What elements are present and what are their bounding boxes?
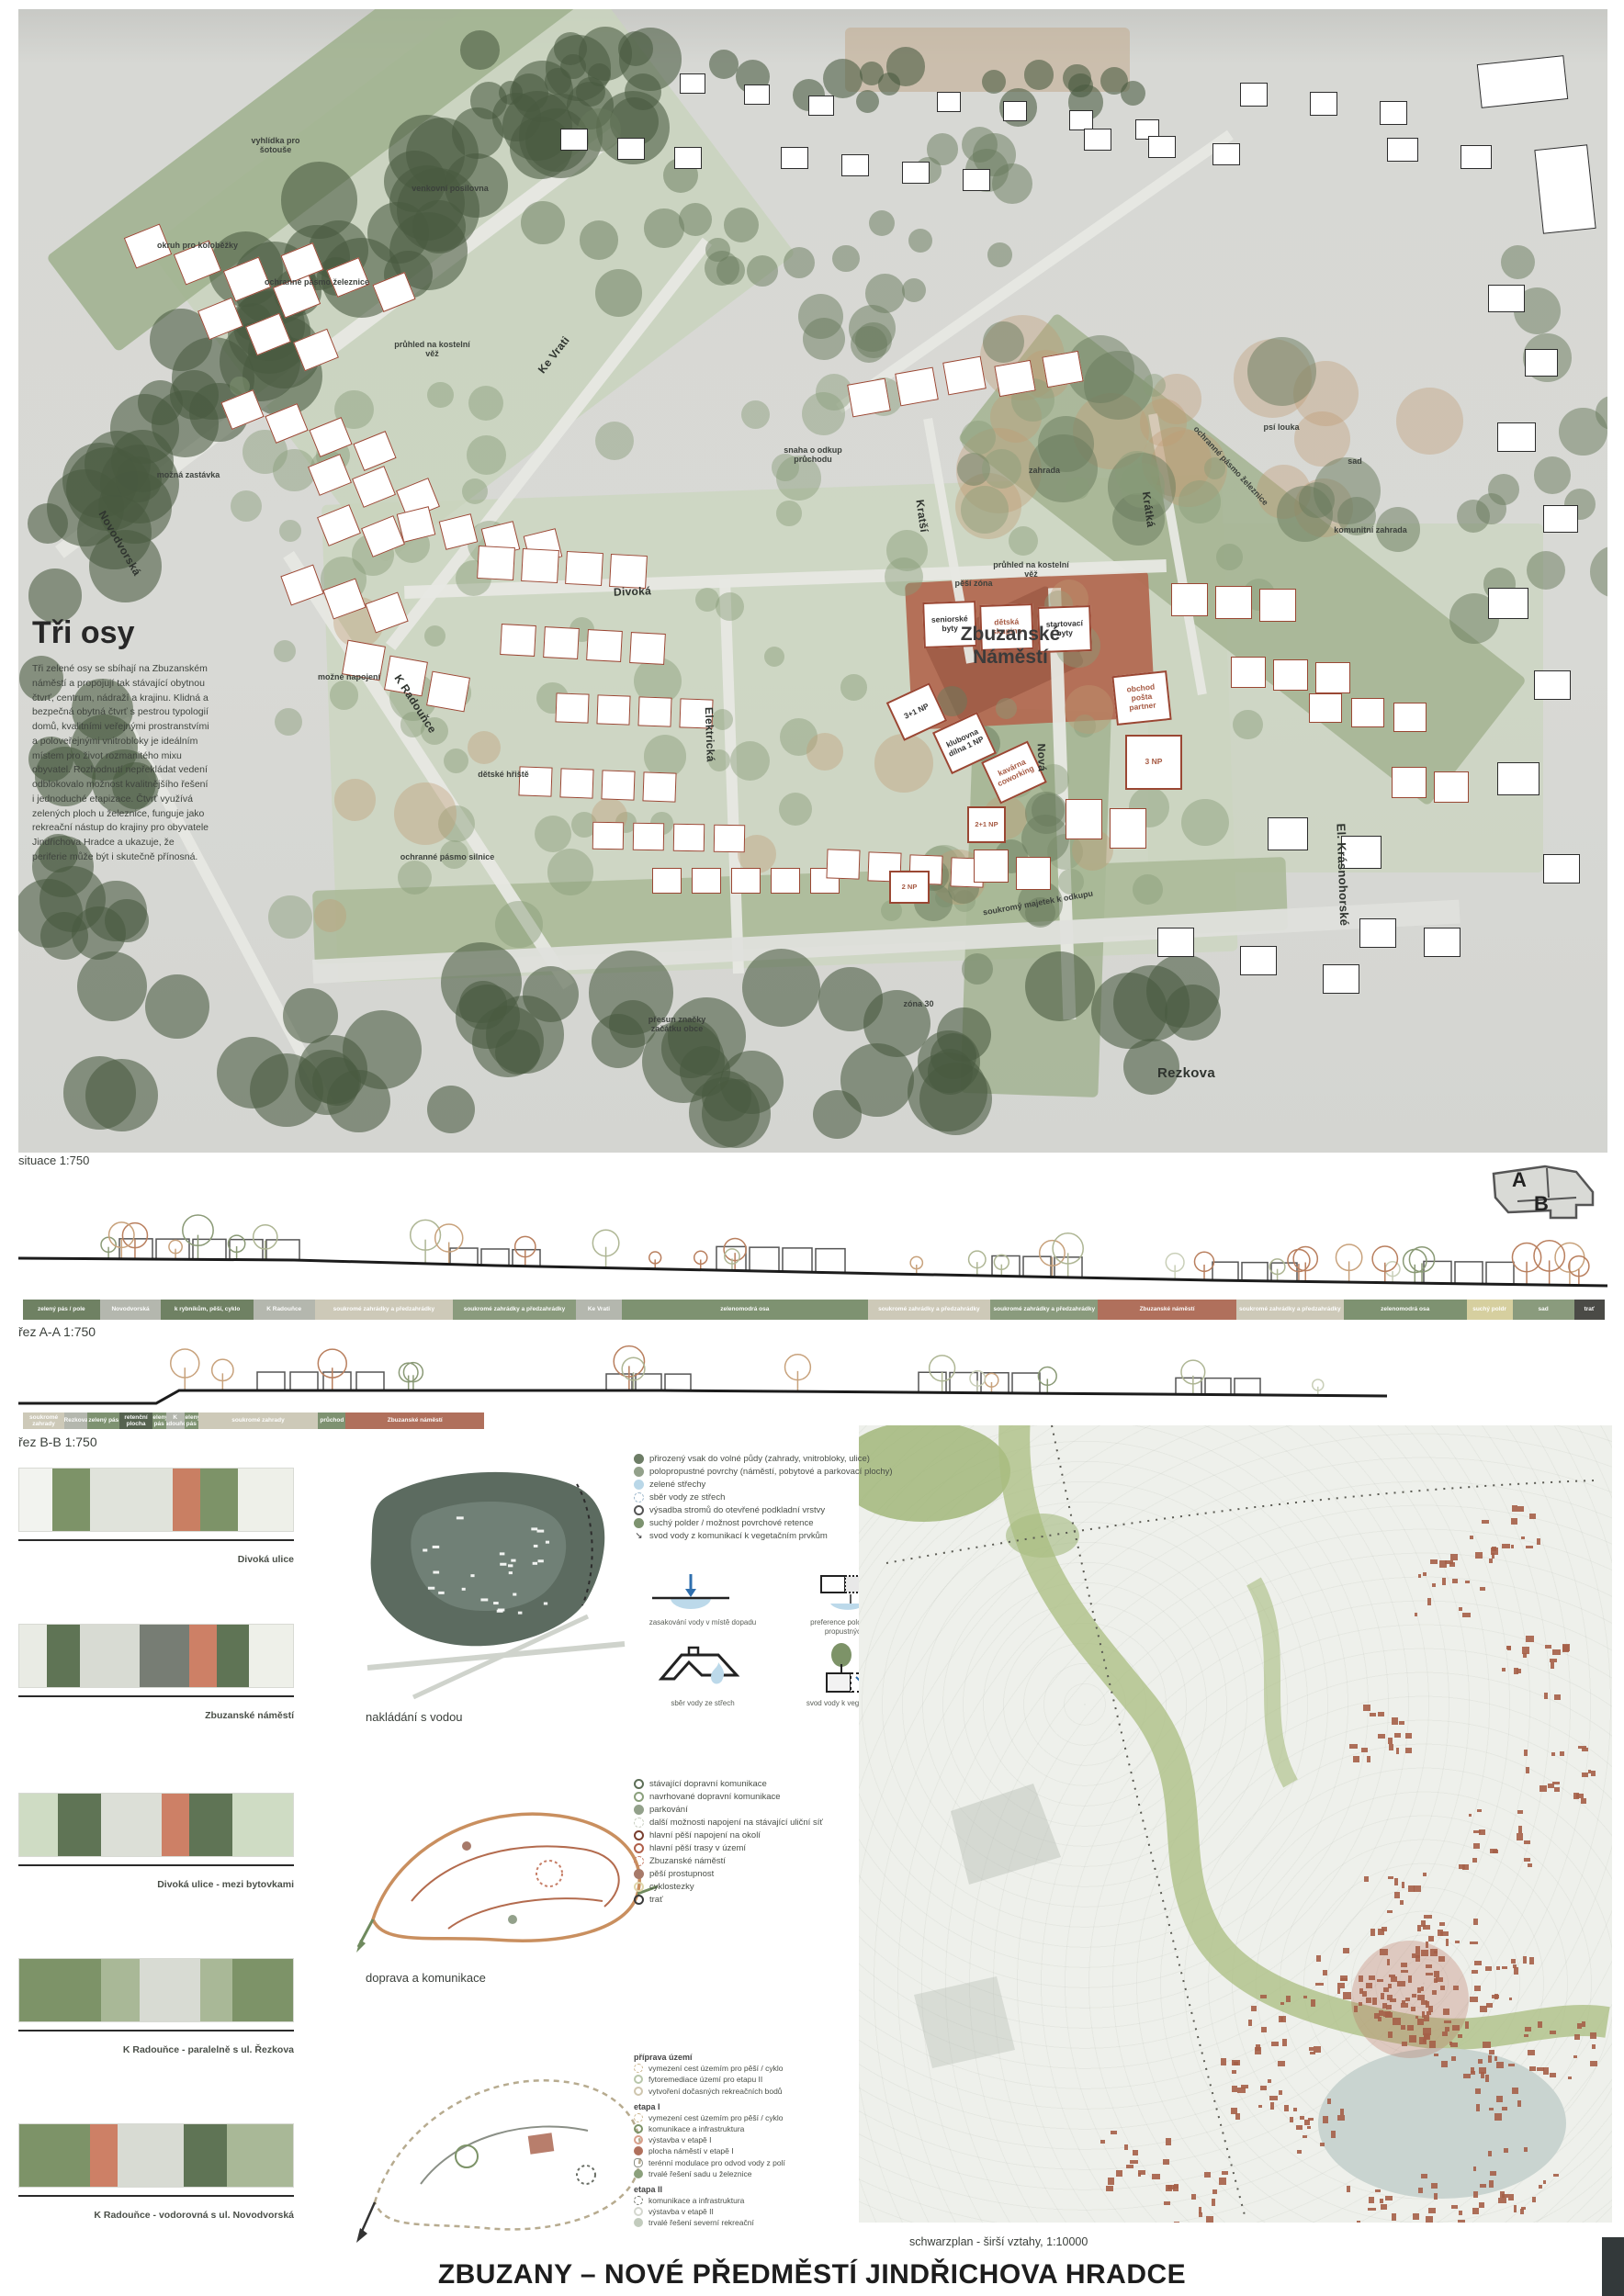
- schwarzplan-building: [1496, 2096, 1503, 2102]
- schwarzplan-building: [1434, 1951, 1438, 1953]
- schwarzplan-building: [1268, 2079, 1271, 2084]
- legend-item: trvalé řešení severní rekreační: [634, 2218, 909, 2227]
- section-building: [323, 1372, 351, 1390]
- schwarzplan-building: [1255, 2047, 1261, 2054]
- section-building: [266, 1240, 299, 1260]
- street-section-plan: [18, 2123, 294, 2188]
- proposed-building: [197, 298, 243, 341]
- section-band-segment: soukromé zahrádky a předzahrádky: [1236, 1300, 1344, 1320]
- section-band-segment: retenční plocha: [119, 1412, 152, 1429]
- schwarzplan-building: [1408, 1885, 1415, 1892]
- schwarzplan-building: [1106, 2186, 1113, 2191]
- roof-icon: [634, 1642, 744, 1695]
- schwarzplan-building: [1514, 1967, 1519, 1974]
- schwarzplan-building: [1453, 1986, 1459, 1990]
- existing-building: [1497, 762, 1539, 795]
- schwarzplan-building: [1349, 1744, 1358, 1749]
- section-band-segment: soukromé zahrádky a předzahrádky: [315, 1300, 453, 1320]
- schwarzplan-building: [1401, 2003, 1408, 2008]
- schwarzplan-building: [1440, 1931, 1449, 1936]
- schwarzplan-building: [1552, 1649, 1561, 1656]
- proposed-building: [555, 692, 589, 723]
- schwarzplan-building: [1443, 2009, 1449, 2015]
- schwarzplan-building: [1409, 2035, 1415, 2042]
- schwarzplan-building: [1426, 1973, 1433, 1975]
- legend-label: cyklostezky: [649, 1882, 694, 1892]
- legend-item: ↘svod vody z komunikací k vegetačním prv…: [634, 1531, 928, 1541]
- schwarzplan-building: [1297, 2150, 1302, 2154]
- legend-item: komunikace a infrastruktura: [634, 2196, 909, 2205]
- schwarzplan-building: [1430, 1559, 1438, 1563]
- schwarzplan-building: [1311, 1999, 1314, 2007]
- schwarzplan-building: [1138, 2170, 1145, 2174]
- schwarzplan-building: [1514, 2205, 1517, 2212]
- schwarzplan-building: [1526, 1767, 1529, 1773]
- street-rezkova: Rezkova: [1157, 1065, 1215, 1081]
- schwarzplan-building: [1340, 2109, 1344, 2114]
- schwarzplan-building: [1529, 1514, 1536, 1519]
- schwarzplan-building: [1401, 1963, 1407, 1968]
- proposed-building: [1434, 771, 1469, 803]
- schwarzplan-building: [1518, 1826, 1522, 1833]
- legend-item: výstavba v etapě II: [634, 2207, 909, 2216]
- schwarzplan-building: [1474, 1961, 1483, 1965]
- proposed-building: [1066, 799, 1102, 839]
- schwarzplan-building: [1417, 2019, 1424, 2025]
- schwarzplan-building: [1366, 1998, 1372, 2003]
- schwarzplan-building: [1470, 1997, 1478, 2002]
- schwarzplan-building: [1477, 1809, 1483, 1812]
- schwarzplan-building: [1337, 1988, 1340, 1994]
- legend-label: výstavba v etapě II: [648, 2207, 714, 2216]
- schwarzplan-building: [1524, 1750, 1528, 1756]
- existing-building: [1380, 101, 1407, 125]
- schwarzplan-map: [859, 1425, 1612, 2223]
- schwarzplan-building: [1204, 2172, 1210, 2177]
- schwarzplan-caption: schwarzplan - širší vztahy, 1:10000: [909, 2235, 1088, 2248]
- legend-item: fytoremediace území pro etapu II: [634, 2075, 909, 2084]
- existing-building: [1488, 285, 1525, 312]
- proposed-building: [586, 629, 623, 662]
- ring-marker-icon: [634, 2075, 643, 2084]
- section-band-segment: soukromé zahrádky a předzahrádky: [868, 1300, 991, 1320]
- existing-building: [781, 147, 808, 169]
- existing-building: [1359, 918, 1396, 948]
- schwarzplan-building: [1401, 1970, 1409, 1973]
- schwarzplan-building: [1130, 2160, 1138, 2164]
- schwarzplan-building: [1337, 2115, 1345, 2122]
- schwarzplan-building: [1362, 1991, 1366, 1997]
- existing-building: [674, 147, 702, 169]
- street-section-thumb: Divoká ulice - mezi bytovkami: [18, 1793, 294, 1890]
- label-zona-30: zóna 30: [891, 999, 946, 1008]
- schwarzplan-building: [1323, 1970, 1327, 1976]
- water-diagram-label: zasakování vody v místě dopadu: [634, 1618, 772, 1627]
- schwarzplan-building: [1221, 2058, 1226, 2065]
- existing-building: [1477, 55, 1568, 108]
- dashed-marker-icon: [634, 2064, 643, 2073]
- schwarzplan-building: [1576, 1794, 1584, 1798]
- schwarzplan-building: [1494, 2056, 1497, 2061]
- schwarzplan-building: [1343, 1992, 1351, 1999]
- schwarzplan-building: [1284, 2105, 1289, 2111]
- legend-item: vymezení cest územím pro pěší / cyklo: [634, 2064, 909, 2073]
- schwarzplan-building: [1590, 2061, 1597, 2066]
- existing-building: [1488, 588, 1528, 619]
- proposed-building: [1231, 657, 1266, 688]
- schwarzplan-building: [1166, 2138, 1171, 2145]
- schwarzplan-building: [1304, 2120, 1309, 2125]
- schwarzplan-building: [1459, 2211, 1462, 2215]
- section-building: [257, 1372, 285, 1390]
- schwarzplan-building: [1462, 1613, 1471, 1617]
- proposed-building: [601, 770, 635, 800]
- legend-item: navrhované dopravní komunikace: [634, 1792, 928, 1802]
- schwarzplan-building: [1251, 2006, 1257, 2010]
- ring-marker-icon: [634, 1843, 644, 1853]
- proposed-building: [559, 768, 593, 798]
- schwarzplan-building: [1387, 1995, 1393, 2000]
- schwarzplan-building: [1394, 1733, 1401, 1738]
- schwarzplan-building: [1545, 1645, 1552, 1649]
- schwarzplan-building: [1401, 2025, 1405, 2030]
- existing-building: [744, 84, 770, 105]
- legend-label: zelené střechy: [649, 1480, 705, 1490]
- existing-building: [1240, 946, 1277, 975]
- existing-building: [902, 162, 930, 184]
- legend-item: trať: [634, 1895, 928, 1905]
- proposed-building: [1393, 703, 1427, 732]
- schwarzplan-building: [1432, 1583, 1436, 1587]
- schwarzplan-building: [1357, 2221, 1361, 2223]
- schwarzplan-building: [1133, 2150, 1138, 2155]
- street-band: [90, 2124, 118, 2187]
- existing-building: [1240, 83, 1268, 107]
- label-mozna-zastavka: možná zastávka: [152, 470, 225, 479]
- schwarzplan-building: [1385, 2196, 1393, 2200]
- schwarzplan-building: [1412, 1953, 1420, 1959]
- schwarzplan-building: [1517, 1810, 1523, 1814]
- proposed-building: [652, 868, 682, 894]
- schwarzplan-building: [1469, 1814, 1472, 1817]
- schwarzplan-building: [1592, 2044, 1596, 2050]
- legend-item: cyklostezky: [634, 1882, 928, 1892]
- existing-building: [1497, 422, 1536, 452]
- section-b-band: soukromé zahradyRezkovazelený pásretenčn…: [23, 1412, 484, 1429]
- schwarzplan-building: [1478, 2059, 1483, 2065]
- schwarzplan-building: [1496, 2062, 1504, 2067]
- schwarzplan-building: [1479, 1829, 1485, 1836]
- section-building: [816, 1249, 845, 1273]
- schwarzplan-building: [1475, 1552, 1483, 1559]
- schwarzplan-building: [1485, 2075, 1489, 2082]
- legend-item: vytvoření dočasných rekreačních bodů: [634, 2087, 909, 2096]
- filled-marker-icon: [634, 1805, 644, 1815]
- street-band: [162, 1794, 189, 1856]
- existing-building: [617, 138, 645, 160]
- schwarzplan-building: [1502, 2194, 1508, 2198]
- street-divoka: Divoká: [614, 585, 652, 599]
- schwarzplan-building: [1124, 2144, 1128, 2150]
- schwarzplan-building: [1235, 2113, 1240, 2120]
- filled-marker-icon: [634, 2146, 643, 2155]
- schwarzplan-building: [1492, 1553, 1494, 1558]
- schwarzplan-building: [1528, 1863, 1532, 1867]
- legend-label: výsadba stromů do otevřené podkladní vrs…: [649, 1505, 825, 1515]
- legend-label: hlavní pěší napojení na okolí: [649, 1830, 761, 1840]
- legend-label: stávající dopravní komunikace: [649, 1779, 767, 1789]
- existing-building: [1534, 144, 1596, 234]
- section-band-segment: soukromé zahrady: [198, 1412, 319, 1429]
- schwarzplan-building: [1389, 1744, 1393, 1750]
- schwarzplan-building: [1286, 1996, 1291, 2002]
- schwarzplan-building: [1450, 1554, 1458, 1560]
- ground-line: [18, 1864, 294, 1866]
- proposed-building: [1215, 586, 1252, 619]
- street-section-thumb: K Radouňce - vodorovná s ul. Novodvorská: [18, 2123, 294, 2221]
- phasing-group-header: etapa II: [634, 2185, 909, 2194]
- proposed-building: [500, 624, 536, 657]
- schwarzplan-building: [1310, 2052, 1315, 2054]
- schwarzplan-building: [1392, 1717, 1399, 1725]
- section-building: [1205, 1379, 1231, 1395]
- water-legend: přirozený vsak do volné půdy (zahrady, v…: [634, 1451, 928, 1544]
- schwarzplan-building: [1359, 2002, 1362, 2006]
- legend-item: plocha náměstí v etapě I: [634, 2146, 909, 2155]
- legend-item: polopropustné povrchy (náměstí, pobytové…: [634, 1467, 928, 1477]
- schwarzplan-building: [1424, 2035, 1429, 2039]
- ring-marker-icon: [634, 2124, 643, 2133]
- schwarzplan-building: [1489, 2180, 1494, 2188]
- schwarzplan-building: [1481, 2072, 1484, 2078]
- schwarzplan-building: [1394, 1878, 1398, 1885]
- schwarzplan-building: [1361, 1748, 1368, 1752]
- schwarzplan-building: [1502, 1668, 1506, 1671]
- schwarzplan-building: [1438, 1956, 1446, 1963]
- section-building: [1176, 1378, 1201, 1394]
- section-building: [1455, 1262, 1483, 1284]
- section-building: [1235, 1379, 1260, 1395]
- corner-tab: [1602, 2237, 1624, 2296]
- section-building: [1486, 1262, 1514, 1284]
- street-band: [19, 1794, 58, 1856]
- ring-marker-icon: [634, 1830, 644, 1840]
- legend-label: parkování: [649, 1805, 688, 1815]
- schwarzplan-building: [1552, 1782, 1561, 1785]
- proposed-building: [352, 466, 396, 508]
- schwarzplan-building: [1434, 2054, 1438, 2056]
- proposed-building: [1392, 767, 1427, 798]
- schwarzplan-building: [1408, 1975, 1412, 1983]
- schwarzplan-building: [1370, 1929, 1375, 1935]
- legend-item: suchý polder / možnost povrchové retence: [634, 1518, 928, 1528]
- schwarzplan-building: [1405, 1733, 1412, 1738]
- schwarzplan-building: [1539, 1785, 1548, 1792]
- schwarzplan-building: [1353, 1756, 1359, 1762]
- schwarzplan-building: [1412, 1994, 1417, 1998]
- schwarzplan-building: [1465, 2021, 1470, 2029]
- schwarzplan-building: [1237, 2088, 1246, 2093]
- street-band: [249, 1625, 293, 1687]
- section-building: [1012, 1373, 1040, 1393]
- section-band-segment: soukromé zahrady: [23, 1412, 64, 1429]
- schwarzplan-building: [1303, 1996, 1307, 1999]
- street-section-thumb: Zbuzanské náměstí: [18, 1624, 294, 1721]
- key-map-b: B: [1534, 1192, 1549, 1216]
- schwarzplan-building: [1472, 1858, 1477, 1862]
- schwarzplan-building: [1407, 2025, 1414, 2031]
- building-layer: [18, 9, 1607, 1153]
- legend-label: vymezení cest územím pro pěší / cyklo: [648, 2113, 783, 2122]
- schwarzplan-building: [1568, 2077, 1572, 2079]
- schwarzplan-building: [1511, 1959, 1515, 1964]
- schwarzplan-building: [1392, 2213, 1396, 2221]
- schwarzplan-building: [1279, 2090, 1282, 2095]
- proposed-building: [308, 454, 352, 496]
- section-band-segment: zelený pás: [152, 1412, 166, 1429]
- schwarzplan-building: [1402, 1882, 1404, 1888]
- schwarzplan-building: [1471, 2071, 1475, 2075]
- section-a-band: zelený pás / poleNovodvorskák rybníkům, …: [23, 1300, 1605, 1320]
- filled-marker-icon: [634, 1480, 644, 1490]
- schwarzplan-building: [1526, 1636, 1534, 1642]
- section-building: [1023, 1256, 1051, 1277]
- legend-label: komunikace a infrastruktura: [648, 2124, 744, 2133]
- schwarzplan-building: [1234, 2062, 1239, 2065]
- proposed-building: [1259, 589, 1296, 622]
- label-pasmo-zeleznice: ochranné pásmo železnice: [253, 277, 381, 287]
- schwarzplan-building: [1494, 2113, 1502, 2121]
- legend-item: komunikace a infrastruktura: [634, 2124, 909, 2133]
- label-presun-znacky: přesun značky začátku obce: [636, 1015, 718, 1034]
- proposed-building: [692, 868, 721, 894]
- section-building: [356, 1372, 384, 1390]
- section-building: [950, 1372, 977, 1392]
- schwarzplan-building: [1480, 2184, 1486, 2188]
- street-band: [19, 1959, 101, 2021]
- schwarzplan-building: [1450, 2043, 1458, 2047]
- schwarzplan-building: [1442, 2032, 1448, 2036]
- existing-building: [808, 96, 834, 116]
- schwarzplan-building: [1212, 2189, 1217, 2194]
- proposed-building: [826, 849, 860, 879]
- proposed-building: [521, 548, 559, 583]
- schwarzplan-building: [1377, 1979, 1383, 1982]
- schwarzplan-building: [1375, 2189, 1381, 2192]
- proposed-building: [673, 824, 705, 852]
- ring-marker-icon: [634, 2135, 643, 2144]
- schwarzplan-building: [1445, 1560, 1453, 1564]
- label-sad: sad: [1332, 456, 1378, 466]
- label-pruhled: průhled na kostelní věž: [992, 560, 1070, 580]
- label-komunitni-zahrada: komunitní zahrada: [1334, 525, 1407, 535]
- proposed-building: [426, 671, 470, 713]
- dashed-marker-icon: [634, 2196, 643, 2205]
- proposed-building: [543, 626, 580, 659]
- existing-building: [1157, 928, 1194, 957]
- schwarzplan-building: [1282, 2039, 1287, 2045]
- schwarzplan-building: [1331, 2131, 1336, 2138]
- schwarzplan-building: [1493, 1850, 1498, 1852]
- schwarzplan-building: [1522, 1647, 1529, 1654]
- schwarzplan-building: [1347, 2186, 1350, 2192]
- transport-caption: doprava a komunikace: [366, 1971, 486, 1985]
- label-odkup-pruchodu: snaha o odkup průchodu: [776, 445, 850, 465]
- legend-item: přirozený vsak do volné půdy (zahrady, v…: [634, 1454, 928, 1464]
- schwarzplan-building: [1366, 1983, 1372, 1988]
- phasing-group-header: etapa I: [634, 2102, 909, 2111]
- legend-label: vymezení cest územím pro pěší / cyklo: [648, 2064, 783, 2073]
- schwarzplan-building: [1163, 2159, 1169, 2165]
- schwarzplan-building: [1343, 1948, 1349, 1953]
- schwarzplan-building: [1496, 1966, 1500, 1970]
- schwarzplan-building: [1479, 2202, 1484, 2208]
- street-band: [19, 2124, 90, 2187]
- phasing-group-header: příprava území: [634, 2053, 909, 2062]
- schwarzplan-building: [1488, 2055, 1492, 2063]
- ring-marker-icon: [634, 1895, 644, 1905]
- proposed-building: [714, 825, 746, 853]
- section-building: [290, 1372, 318, 1390]
- schwarzplan-building: [1483, 2042, 1491, 2049]
- schwarzplan-building: [1199, 2207, 1201, 2213]
- proposed-building: [353, 431, 396, 471]
- street-krasnohorske: El. Krásnohorské: [1333, 823, 1350, 926]
- schwarzplan-building: [1354, 2006, 1357, 2011]
- arrow-marker-icon: ↘: [634, 1531, 644, 1541]
- schwarzplan-building: [1489, 2050, 1494, 2054]
- street-band: [90, 1469, 172, 1531]
- schwarzplan-building: [1378, 1734, 1385, 1739]
- proposed-building: [974, 850, 1009, 883]
- street-band: [189, 1625, 217, 1687]
- schwarzplan-building: [1452, 1579, 1458, 1582]
- schwarzplan-building: [1388, 1876, 1393, 1879]
- schwarzplan-building: [1455, 1941, 1460, 1943]
- ground-line: [18, 1695, 294, 1697]
- legend-item: hlavní pěší napojení na okolí: [634, 1830, 928, 1840]
- legend-label: trvalé řešení severní rekreační: [648, 2218, 754, 2227]
- section-band-segment: soukromé zahrádky a předzahrádky: [990, 1300, 1098, 1320]
- phasing-legend: příprava územívymezení cest územím pro p…: [634, 2046, 909, 2229]
- transport-legend: stávající dopravní komunikacenavrhované …: [634, 1776, 928, 1908]
- existing-building: [1534, 670, 1571, 700]
- schwarzplan-building: [1588, 1770, 1591, 1773]
- section-band-segment: soukromé zahrádky a předzahrádky: [453, 1300, 576, 1320]
- schwarzplan-building: [1369, 1975, 1375, 1980]
- schwarzplan-building: [1560, 1751, 1564, 1756]
- schwarzplan-building: [1369, 2197, 1374, 2204]
- schwarzplan-building: [1191, 2194, 1196, 2200]
- existing-building: [1424, 928, 1460, 957]
- schwarzplan-building: [1512, 1505, 1517, 1512]
- schwarzplan-building: [1590, 2032, 1596, 2039]
- siteplan-caption: situace 1:750: [18, 1154, 89, 1167]
- schwarzplan-building: [1378, 1929, 1384, 1935]
- blob-marker-icon: [634, 2158, 643, 2167]
- schwarzplan-building: [1380, 2199, 1383, 2203]
- schwarzplan-building: [1372, 1998, 1377, 2004]
- section-band-segment: Zbuzanské náměstí: [345, 1412, 484, 1429]
- key-map: A B: [1481, 1161, 1600, 1245]
- street-band: [200, 1959, 233, 2021]
- label-zahrada: zahrada: [1012, 466, 1077, 475]
- schwarzplan-building: [1517, 1506, 1523, 1512]
- street-section-caption: Divoká ulice - mezi bytovkami: [18, 1879, 294, 1890]
- schwarzplan-building: [1393, 2018, 1400, 2025]
- existing-building: [1460, 145, 1492, 169]
- schwarzplan-building: [1293, 2108, 1297, 2111]
